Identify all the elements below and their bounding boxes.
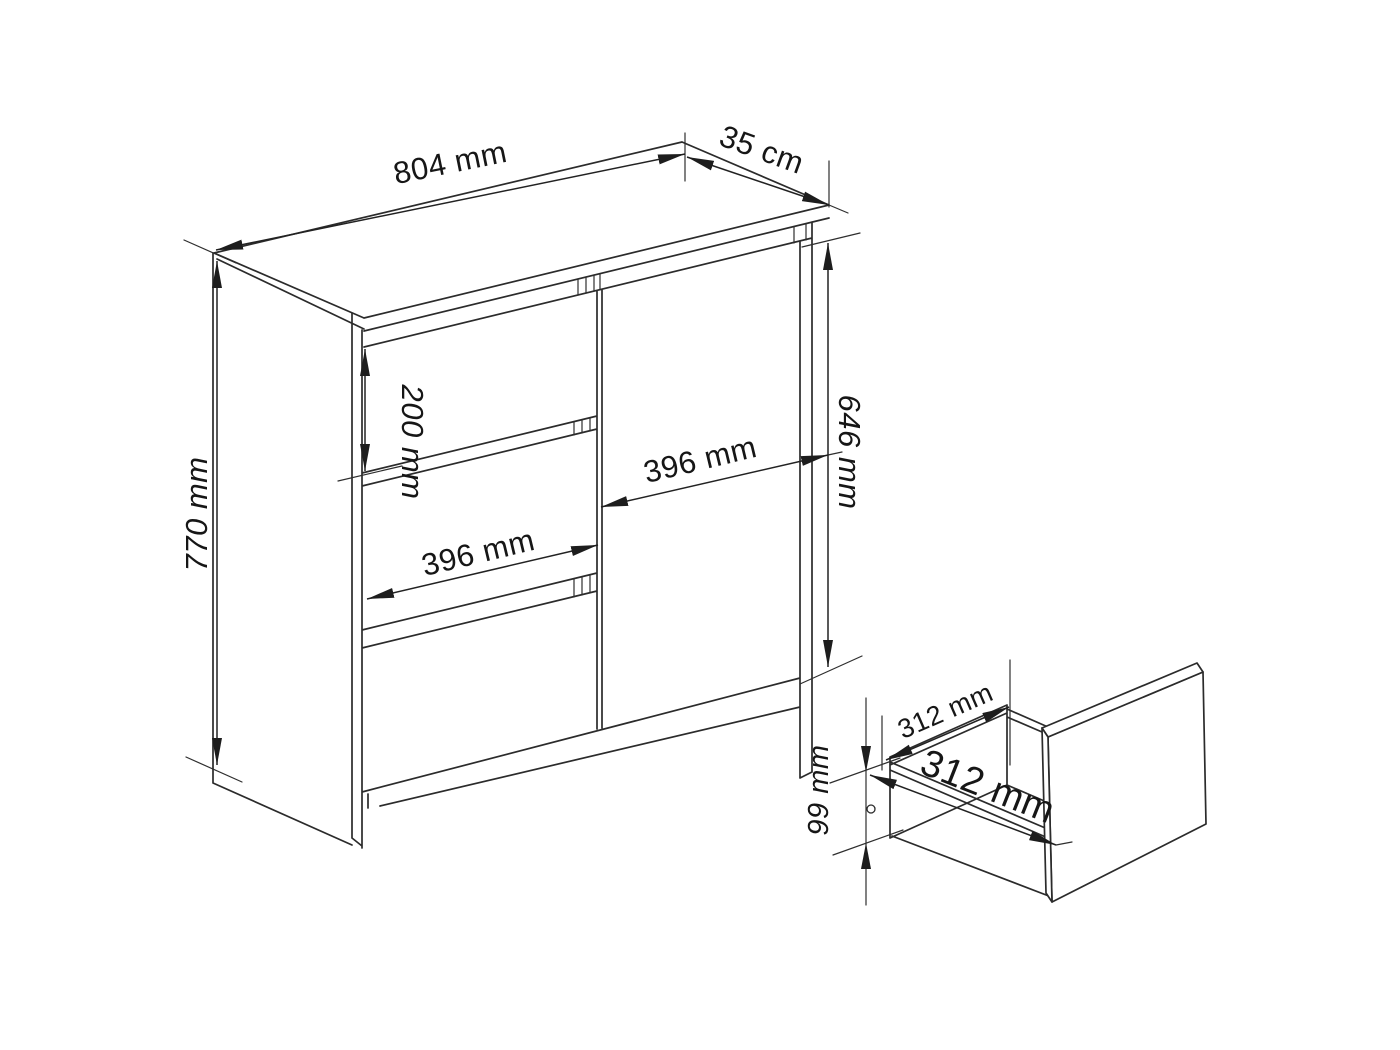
cabinet-carcass-lines <box>213 142 829 848</box>
label-detail-side-height: 99 mm <box>803 744 835 835</box>
label-drawer-height: 200 mm <box>395 384 430 500</box>
cabinet-main-view <box>213 142 829 848</box>
dim-99-arrow-up <box>861 843 871 869</box>
label-total-height: 770 mm <box>179 457 214 572</box>
drawer-side-hole-mark <box>867 805 875 813</box>
dimension-diagram-canvas: 804 mm 35 cm 770 mm 200 mm 396 mm 396 mm… <box>0 0 1400 1050</box>
label-door-height: 646 mm <box>832 395 867 510</box>
drawer-front-panel <box>1048 672 1206 902</box>
technical-drawing-page: 804 mm 35 cm 770 mm 200 mm 396 mm 396 mm… <box>0 0 1400 1050</box>
handle-groove-ticks <box>574 224 806 597</box>
label-door-width: 396 mm <box>640 429 760 490</box>
label-top-width: 804 mm <box>390 134 510 191</box>
dim-99-arrow-down <box>861 746 871 772</box>
dimension-labels: 804 mm 35 cm 770 mm 200 mm 396 mm 396 mm… <box>179 118 1061 835</box>
